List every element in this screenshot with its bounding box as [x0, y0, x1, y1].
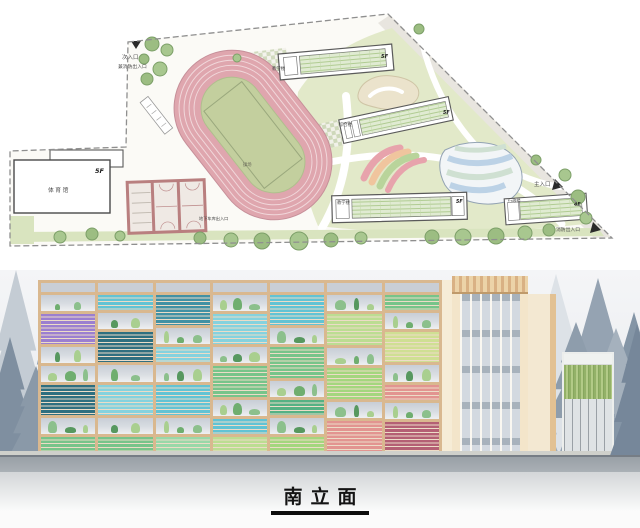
teaching-north-floors: 5F	[381, 54, 389, 60]
entrance-main-label: 主入口	[534, 180, 551, 188]
entrance-secondary-label: 次入口	[122, 53, 139, 61]
tree	[543, 224, 555, 236]
tree	[54, 231, 66, 243]
tree	[355, 232, 367, 244]
teaching-north-label: 教学楼	[272, 65, 286, 72]
field-label: 操场	[243, 161, 252, 168]
teaching-south-label: 教学楼	[337, 199, 351, 206]
tree	[531, 155, 541, 165]
tree	[455, 229, 471, 245]
tree	[414, 24, 424, 34]
tree	[141, 73, 153, 85]
tree	[139, 54, 149, 64]
tree	[518, 226, 532, 240]
tree	[488, 228, 504, 244]
tree	[571, 190, 585, 204]
tree	[580, 212, 592, 224]
lawn-band-west	[10, 216, 34, 244]
drawing-title: 南立面	[271, 482, 368, 515]
site-plan: 次入口 兼消防出入口 主入口 消防出入口 地下车库出入口 操场 体育馆 5F 教…	[0, 0, 640, 266]
tree	[115, 231, 125, 241]
comprehensive-label: 综合楼	[339, 121, 353, 128]
pine-tree	[607, 324, 640, 468]
tree	[153, 62, 167, 76]
garage-entrance-label: 地下车库出入口	[199, 215, 228, 222]
title-block: 南立面	[0, 482, 640, 515]
road	[0, 455, 640, 472]
comprehensive-floors: 5F	[443, 110, 450, 116]
tree	[254, 233, 270, 249]
entrance-secondary-note: 兼消防出入口	[118, 63, 147, 70]
teaching-south-floors: 5F	[456, 199, 463, 205]
entrance-fire-label: 消防出入口	[556, 226, 580, 233]
tree	[161, 44, 173, 56]
basketball-courts	[127, 180, 206, 234]
tree	[86, 228, 98, 240]
tree	[559, 169, 571, 181]
admin-label: 行政楼	[508, 197, 521, 204]
building-teaching-south	[332, 192, 468, 223]
building-gym	[14, 150, 123, 213]
tree	[194, 232, 206, 244]
south-elevation: 南立面	[0, 270, 640, 528]
gym-label: 体育馆	[48, 186, 70, 194]
tree	[290, 232, 308, 250]
tree	[233, 54, 241, 62]
tree	[425, 230, 439, 244]
tree	[224, 233, 238, 247]
tree	[324, 233, 338, 247]
gym-floors: 5F	[95, 167, 105, 175]
